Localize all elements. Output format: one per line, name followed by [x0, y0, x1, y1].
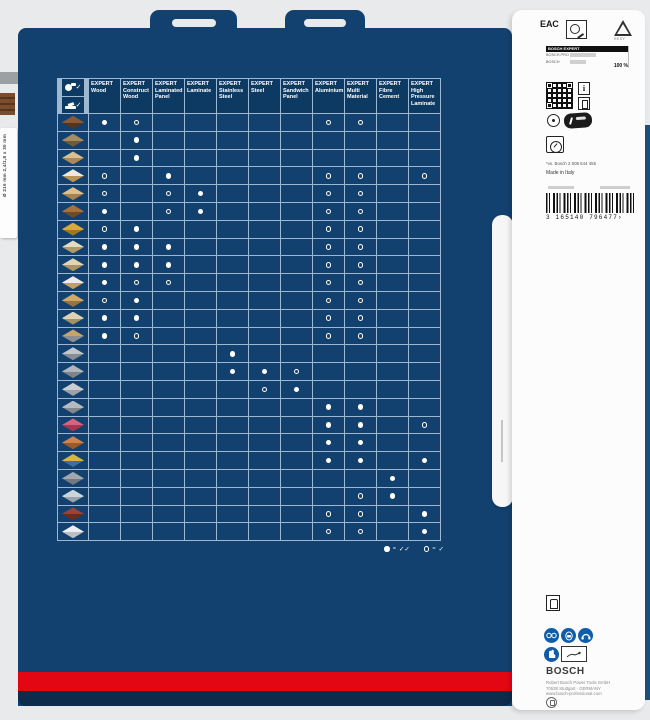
material-cell [58, 167, 88, 184]
mineral-material-icon [62, 525, 84, 538]
hpl-board-icon [62, 507, 84, 520]
matrix-cell [153, 292, 184, 309]
matrix-cell [281, 274, 312, 291]
dot-open [358, 493, 364, 499]
column-header: EXPERTStainless Steel [217, 79, 248, 113]
matrix-cell [153, 452, 184, 469]
spine-dimensions-text: Ø 216 mm 2,4/1,8 x 30 mm [2, 134, 7, 197]
matrix-cell [345, 292, 376, 309]
matrix-cell [313, 256, 344, 273]
matrix-cell [121, 310, 152, 327]
matrix-cell [281, 310, 312, 327]
eac-mark: ЕАС [540, 20, 559, 32]
safety-icons-row [544, 628, 593, 643]
matrix-cell [281, 167, 312, 184]
dot-open [326, 315, 332, 321]
blade-package-icon [566, 20, 587, 39]
dot-filled [102, 120, 108, 126]
matrix-cell [313, 470, 344, 487]
matrix-cell [345, 345, 376, 362]
matrix-cell [121, 203, 152, 220]
matrix-cell [345, 203, 376, 220]
matrix-cell [185, 363, 216, 380]
dot-open [166, 209, 172, 215]
matrix-cell [153, 506, 184, 523]
neighbour-wood-thumbnail [0, 93, 15, 115]
matrix-cell [409, 452, 440, 469]
matrix-cell [249, 399, 280, 416]
matrix-cell [89, 363, 120, 380]
matrix-cell [409, 470, 440, 487]
matrix-cell [249, 310, 280, 327]
dot-open [102, 298, 108, 304]
matrix-cell [345, 221, 376, 238]
matrix-cell [345, 434, 376, 451]
matrix-cell [313, 150, 344, 167]
matrix-cell [281, 506, 312, 523]
matrix-cell [409, 167, 440, 184]
dot-filled [198, 209, 204, 215]
dot-open [326, 511, 332, 517]
matrix-cell [89, 452, 120, 469]
laminate-flooring-icon [62, 187, 84, 200]
info-icon: i [578, 82, 590, 95]
matrix-cell [281, 185, 312, 202]
matrix-cell [89, 328, 120, 345]
dot-filled [422, 511, 428, 517]
column-header: EXPERTLaminate [185, 79, 216, 113]
matrix-cell [377, 399, 408, 416]
product-badge-icon [564, 112, 593, 129]
dot-filled [390, 476, 396, 482]
gloves-icon [544, 647, 559, 662]
matrix-cell [89, 434, 120, 451]
equals-sign: = [393, 546, 396, 552]
mitre-saw-icon [65, 101, 76, 109]
matrix-cell [377, 221, 408, 238]
matrix-cell [89, 132, 120, 149]
matrix-cell [377, 417, 408, 434]
material-cell [58, 470, 88, 487]
material-cell [58, 132, 88, 149]
matrix-cell [185, 114, 216, 131]
matrix-cell [281, 452, 312, 469]
material-cell [58, 114, 88, 131]
matrix-cell [217, 256, 248, 273]
matrix-cell [121, 381, 152, 398]
matrix-cell [409, 328, 440, 345]
matrix-cell [345, 150, 376, 167]
matrix-cell [281, 399, 312, 416]
dot-filled [166, 244, 172, 250]
package-side-spine [492, 215, 513, 507]
dot-filled [358, 422, 364, 428]
matrix-cell [313, 132, 344, 149]
dot-legend: = ✓✓ = ✓ [340, 545, 444, 553]
matrix-cell [345, 488, 376, 505]
dot-open [326, 209, 332, 215]
dot-open [358, 298, 364, 304]
matrix-cell [409, 417, 440, 434]
eye-protection-icon [544, 628, 559, 643]
matrix-cell [153, 203, 184, 220]
matrix-cell [217, 506, 248, 523]
comparison-footnote: *vs. Bosch 2 608 644 455 [546, 161, 596, 166]
matrix-cell [89, 239, 120, 256]
matrix-cell [409, 345, 440, 362]
matrix-cell [153, 256, 184, 273]
matrix-cell [153, 470, 184, 487]
material-cell [58, 488, 88, 505]
matrix-cell [281, 523, 312, 540]
euro-slot-hole [172, 19, 216, 27]
dot-open [326, 226, 332, 232]
dot-filled [358, 458, 364, 464]
tool-legend-cell: ✓ ✓ [58, 79, 88, 113]
matrix-cell [217, 274, 248, 291]
matrix-cell [153, 417, 184, 434]
matrix-cell [345, 470, 376, 487]
matrix-cell [377, 274, 408, 291]
dot-filled [198, 191, 204, 197]
matrix-cell [89, 274, 120, 291]
matrix-cell [377, 434, 408, 451]
matrix-cell [313, 523, 344, 540]
matrix-cell [345, 328, 376, 345]
bottom-navy-band [18, 691, 512, 706]
matrix-cell [185, 256, 216, 273]
matrix-cell [121, 328, 152, 345]
matrix-cell [249, 523, 280, 540]
dot-filled [134, 298, 140, 304]
dust-mask-icon [561, 628, 576, 643]
matrix-cell [313, 274, 344, 291]
solid-wood-board-icon [62, 205, 84, 218]
dot-open [166, 280, 172, 286]
matrix-cell [121, 256, 152, 273]
matrix-cell [185, 328, 216, 345]
package-photo: Ø 216 mm 2,4/1,8 x 30 mm ✓ ✓ EXPERTWoodE… [0, 0, 650, 720]
material-cell [58, 203, 88, 220]
matrix-cell [313, 328, 344, 345]
matrix-cell [377, 132, 408, 149]
dot-filled [102, 333, 108, 339]
matrix-cell [281, 132, 312, 149]
matrix-cell [377, 345, 408, 362]
column-header: EXPERTAluminium [313, 79, 344, 113]
matrix-cell [281, 203, 312, 220]
matrix-cell [345, 506, 376, 523]
matrix-cell [121, 434, 152, 451]
matrix-cell [377, 328, 408, 345]
matrix-cell [121, 523, 152, 540]
matrix-cell [345, 417, 376, 434]
matrix-cell [313, 434, 344, 451]
tool-check: ✓ [76, 83, 82, 91]
bosch-logo: BOSCH [546, 666, 585, 677]
euro-slot-hole [304, 19, 346, 27]
matrix-cell [185, 434, 216, 451]
matrix-cell [409, 150, 440, 167]
dot-open [102, 191, 108, 197]
softwood-beam-icon [62, 151, 84, 164]
white-info-panel: ЕАС RESY BOSCH EXPERT BOSCH PRO BOSCH 10… [512, 10, 645, 710]
matrix-cell [249, 274, 280, 291]
matrix-cell [121, 399, 152, 416]
small-print-right [600, 186, 630, 189]
matrix-cell [185, 417, 216, 434]
multilayer-panel-icon [62, 436, 84, 449]
matrix-cell [281, 345, 312, 362]
matrix-cell [89, 470, 120, 487]
tool-legend-row: ✓ [62, 79, 85, 96]
right-edge-strip [645, 125, 650, 700]
max-speed-gauge-icon [546, 136, 564, 153]
matrix-cell [281, 292, 312, 309]
matrix-cell [89, 399, 120, 416]
ean-barcode: 3 165140 796477› [546, 193, 636, 221]
matrix-cell [89, 381, 120, 398]
birch-plywood-icon [62, 258, 84, 271]
handling-warning-icon [546, 595, 560, 611]
matrix-cell [153, 488, 184, 505]
matrix-cell [121, 114, 152, 131]
glued-wood-planks-icon [62, 312, 84, 325]
column-header: EXPERTHigh Pressure Laminate [409, 79, 440, 113]
tool-check: ✓ [76, 101, 82, 109]
material-cell [58, 239, 88, 256]
matrix-cell [89, 345, 120, 362]
dot-open [102, 226, 108, 232]
matrix-cell [409, 488, 440, 505]
matrix-cell [185, 310, 216, 327]
matrix-cell [345, 523, 376, 540]
matrix-cell [185, 167, 216, 184]
matrix-cell [217, 488, 248, 505]
matrix-cell [185, 292, 216, 309]
acrylic-sheet-icon [62, 418, 84, 431]
material-cell [58, 417, 88, 434]
column-header: EXPERTWood [89, 79, 120, 113]
matrix-cell [281, 488, 312, 505]
matrix-cell [153, 328, 184, 345]
material-cell [58, 434, 88, 451]
matrix-cell [185, 470, 216, 487]
dot-filled [166, 173, 172, 179]
matrix-cell [377, 452, 408, 469]
matrix-cell [121, 417, 152, 434]
matrix-cell [153, 363, 184, 380]
dot-filled [134, 244, 140, 250]
dot-open [358, 280, 364, 286]
matrix-cell [281, 221, 312, 238]
matrix-cell [89, 114, 120, 131]
matrix-cell [249, 345, 280, 362]
matrix-cell [185, 221, 216, 238]
matrix-cell [121, 167, 152, 184]
address-line: www.bosch-professional.com [546, 691, 610, 697]
matrix-cell [89, 256, 120, 273]
matrix-cell [345, 185, 376, 202]
performance-comparison: BOSCH EXPERT BOSCH PRO BOSCH 100 % [546, 46, 638, 65]
matrix-cell [185, 345, 216, 362]
matrix-cell [185, 274, 216, 291]
aluminium-profiles-icon [62, 401, 84, 414]
dot-filled [134, 315, 140, 321]
matrix-cell [377, 292, 408, 309]
matrix-cell [409, 221, 440, 238]
matrix-cell [313, 506, 344, 523]
recycling-label: RESY [614, 37, 625, 41]
fibre-cement-board-icon [62, 472, 84, 485]
matrix-cell [345, 114, 376, 131]
dot-open [358, 191, 364, 197]
column-header: EXPERTSteel [249, 79, 280, 113]
matrix-cell [377, 114, 408, 131]
matrix-cell [345, 363, 376, 380]
matrix-cell [249, 363, 280, 380]
compare-bar-expert: BOSCH EXPERT [546, 46, 628, 52]
column-header: EXPERTMulti Material [345, 79, 376, 113]
dot-filled [102, 209, 108, 215]
matrix-cell [377, 363, 408, 380]
material-cell [58, 185, 88, 202]
dot-open [102, 173, 108, 179]
matrix-cell [281, 114, 312, 131]
matrix-cell [281, 417, 312, 434]
matrix-cell [89, 523, 120, 540]
blade-spec-icon [547, 114, 560, 127]
material-cell [58, 506, 88, 523]
dot-open [294, 369, 300, 375]
matrix-cell [153, 185, 184, 202]
matrix-cell [345, 167, 376, 184]
matrix-cell [345, 381, 376, 398]
read-manual-icon [561, 646, 587, 662]
matrix-cell [345, 132, 376, 149]
dot-filled [294, 387, 300, 393]
chipboard-icon [62, 294, 84, 307]
matrix-cell [377, 256, 408, 273]
material-cell [58, 345, 88, 362]
matrix-cell [185, 185, 216, 202]
matrix-cell [377, 185, 408, 202]
matrix-cell [121, 292, 152, 309]
matrix-cell [281, 150, 312, 167]
sandwich-panel-icon [62, 383, 84, 396]
matrix-cell [121, 221, 152, 238]
corrugated-steel-icon [62, 365, 84, 378]
matrix-cell [217, 381, 248, 398]
matrix-cell [89, 221, 120, 238]
matrix-cell [89, 167, 120, 184]
dot-open [358, 226, 364, 232]
dot-open [262, 387, 268, 393]
matrix-cell [153, 167, 184, 184]
dot-filled [166, 262, 172, 268]
matrix-cell [313, 167, 344, 184]
dot-filled [422, 458, 428, 464]
construct-wood-nails-icon [62, 134, 84, 147]
matrix-cell [89, 292, 120, 309]
material-cell [58, 328, 88, 345]
dot-filled [134, 262, 140, 268]
ear-protection-icon [578, 628, 593, 643]
barcode-digits: 3 165140 796477› [546, 214, 636, 221]
matrix-cell [121, 452, 152, 469]
matrix-cell [409, 506, 440, 523]
material-cell [58, 523, 88, 540]
matrix-cell [409, 523, 440, 540]
filled-dot-icon [384, 546, 390, 552]
matrix-cell [313, 185, 344, 202]
made-in-label: Made in Italy [546, 170, 574, 176]
matrix-cell [89, 310, 120, 327]
matrix-cell [249, 150, 280, 167]
dot-open [134, 333, 140, 339]
dot-open [326, 333, 332, 339]
matrix-cell [121, 506, 152, 523]
dot-open [358, 262, 364, 268]
column-header: EXPERTFibre Cement [377, 79, 408, 113]
material-cell [58, 274, 88, 291]
matrix-cell [185, 203, 216, 220]
hardwood-planks-icon [62, 116, 84, 129]
matrix-cell [217, 345, 248, 362]
matrix-cell [345, 239, 376, 256]
dot-open [134, 280, 140, 286]
matrix-cell [185, 452, 216, 469]
matrix-cell [153, 221, 184, 238]
material-cell [58, 399, 88, 416]
barcode-bars [546, 193, 636, 213]
melamine-panel-icon [62, 276, 84, 289]
matrix-cell [345, 274, 376, 291]
matrix-cell [185, 381, 216, 398]
matrix-cell [121, 274, 152, 291]
dot-filled [326, 458, 332, 464]
matrix-cell [185, 523, 216, 540]
matrix-cell [313, 417, 344, 434]
dot-open [358, 173, 364, 179]
material-cell [58, 292, 88, 309]
matrix-cell [377, 381, 408, 398]
dot-filled [102, 262, 108, 268]
matrix-cell [281, 434, 312, 451]
matrix-cell [121, 363, 152, 380]
matrix-cell [281, 470, 312, 487]
dot-filled [102, 280, 108, 286]
dot-filled [358, 404, 364, 410]
dot-filled [422, 529, 428, 535]
matrix-cell [281, 381, 312, 398]
matrix-cell [377, 488, 408, 505]
matrix-cell [153, 381, 184, 398]
matrix-cell [153, 434, 184, 451]
matrix-cell [217, 523, 248, 540]
matrix-cell [409, 256, 440, 273]
dot-filled [230, 369, 236, 375]
matrix-cell [249, 167, 280, 184]
dot-filled [262, 369, 268, 375]
column-header: EXPERTConstruct Wood [121, 79, 152, 113]
matrix-cell [409, 203, 440, 220]
matrix-cell [345, 256, 376, 273]
matrix-cell [153, 523, 184, 540]
dot-open [134, 120, 140, 126]
dot-filled [134, 137, 140, 143]
matrix-cell [313, 488, 344, 505]
